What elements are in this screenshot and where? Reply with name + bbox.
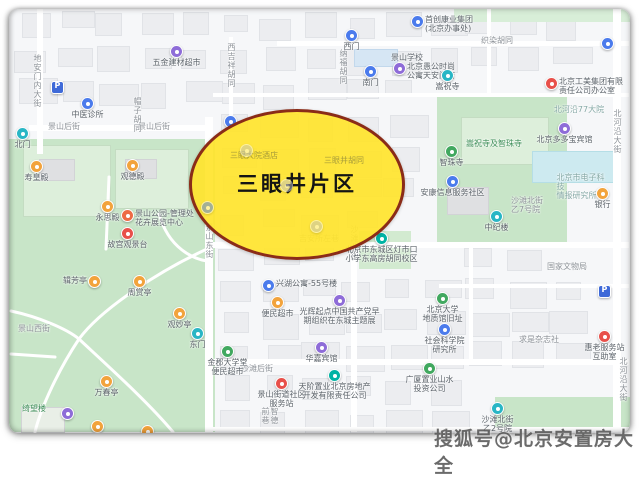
poi-label: 北京工美集团有限 责任公司办公室 bbox=[559, 77, 623, 95]
poi-marker: 南门 bbox=[364, 65, 377, 78]
parking-icon[interactable] bbox=[51, 81, 64, 94]
poi-label: 故宫观景台 bbox=[108, 240, 148, 249]
poi-label: 景山公园-管理处 花卉展览中心 bbox=[135, 209, 194, 227]
poi-marker: 惠老服务站 互助室 bbox=[598, 330, 611, 343]
poi-marker: 中纪楼 bbox=[490, 210, 503, 223]
poi-marker: 北京多多宝宾馆 bbox=[558, 122, 571, 135]
poi-label: 周赏亭 bbox=[128, 288, 152, 297]
poi-marker: 社会科学院 研究所 bbox=[438, 323, 451, 336]
poi-marker bbox=[280, 179, 293, 192]
purple-poi-icon[interactable] bbox=[333, 294, 346, 307]
poi-label: 南门 bbox=[363, 78, 379, 87]
blue-poi-icon[interactable] bbox=[262, 279, 275, 292]
orange-poi-icon[interactable] bbox=[100, 375, 113, 388]
poi-label: 天阶置业北京房地产 开发有限责任公司 bbox=[299, 382, 371, 400]
poi-label: 万春亭 bbox=[95, 388, 119, 397]
highlight-area-label: 三眼井片区 bbox=[237, 168, 357, 198]
poi-label: 社会科学院 研究所 bbox=[425, 336, 465, 354]
orange-poi-icon[interactable] bbox=[88, 275, 101, 288]
poi-layer: 五金建材超市西门南门北京愚公时尚 公寓天安门店首创康业集团 (北京办事处)嵩祝寺… bbox=[9, 9, 630, 433]
poi-marker bbox=[601, 37, 614, 50]
watermark-text: 搜狐号@北京安置房大全 bbox=[434, 424, 640, 478]
green-poi-icon[interactable] bbox=[436, 292, 449, 305]
poi-marker: 景山街道社区 服务站 bbox=[275, 377, 288, 390]
poi-label: 辑芳亭 bbox=[63, 276, 87, 285]
poi-marker: 周赏亭 bbox=[133, 275, 146, 288]
poi-marker: 辑芳亭 bbox=[88, 275, 101, 288]
area-label: 嵩祝寺及智珠寺 bbox=[466, 139, 522, 148]
red-poi-icon[interactable] bbox=[121, 227, 134, 240]
poi-marker: 景山公园-管理处 花卉展览中心 bbox=[121, 209, 134, 222]
poi-label: 北京多多宝宾馆 bbox=[537, 135, 593, 144]
street-label: 织染胡同 bbox=[481, 36, 513, 45]
poi-label: 光辉起点中国共产党早 期组织在东城主题展 bbox=[300, 307, 380, 325]
poi-label: 西门 bbox=[344, 42, 360, 51]
orange-poi-icon[interactable] bbox=[141, 425, 154, 433]
poi-label: 银行 bbox=[595, 200, 611, 209]
poi-label: 嵩祝寺 bbox=[436, 82, 460, 91]
poi-marker: 万春亭 bbox=[100, 375, 113, 388]
teal-poi-icon[interactable] bbox=[328, 369, 341, 382]
area-label: 三眼井胡同 bbox=[324, 156, 364, 165]
gray-poi-icon[interactable] bbox=[280, 179, 293, 192]
poi-marker bbox=[61, 407, 74, 420]
blue-poi-icon[interactable] bbox=[81, 97, 94, 110]
green-poi-icon[interactable] bbox=[221, 345, 234, 358]
poi-marker: 北京大学 地质馆旧址 bbox=[436, 292, 449, 305]
poi-marker: 光辉起点中国共产党早 期组织在东城主题展 bbox=[333, 294, 346, 307]
orange-poi-icon[interactable] bbox=[596, 187, 609, 200]
poi-label: 观妙亭 bbox=[168, 320, 192, 329]
green-poi-icon[interactable] bbox=[423, 362, 436, 375]
poi-label: 安康信息服务社区 bbox=[421, 188, 485, 197]
orange-poi-icon[interactable] bbox=[271, 296, 284, 309]
redorange-poi-icon[interactable] bbox=[121, 209, 134, 222]
purple-poi-icon[interactable] bbox=[170, 45, 183, 58]
poi-marker: 便民超市 bbox=[271, 296, 284, 309]
poi-label: 永思殿 bbox=[96, 213, 120, 222]
poi-marker bbox=[91, 420, 104, 433]
purple-poi-icon[interactable] bbox=[393, 62, 406, 75]
poi-label: 寿皇殿 bbox=[25, 173, 49, 182]
poi-marker: 嵩祝寺 bbox=[441, 69, 454, 82]
street-label: 纳福胡同 bbox=[339, 49, 348, 85]
street-label: 求是杂志社 bbox=[519, 335, 559, 344]
red-poi-icon[interactable] bbox=[275, 377, 288, 390]
poi-label: 首创康业集团 (北京办事处) bbox=[425, 15, 473, 33]
red-poi-icon[interactable] bbox=[545, 77, 558, 90]
orange-poi-icon[interactable] bbox=[173, 307, 186, 320]
poi-label: 惠老服务站 互助室 bbox=[585, 343, 625, 361]
poi-marker: 沙滩北街 乙2号院 bbox=[491, 402, 504, 415]
blue-poi-icon[interactable] bbox=[601, 37, 614, 50]
purple-poi-icon[interactable] bbox=[315, 341, 328, 354]
street-label: 景山后街 bbox=[48, 122, 80, 131]
poi-marker: 北门 bbox=[16, 127, 29, 140]
cyan-poi-icon[interactable] bbox=[191, 327, 204, 340]
poi-label: 北京市东城区灯市口 小学东高房胡同校区 bbox=[346, 245, 418, 263]
street-label: 智德前巷 bbox=[261, 407, 279, 433]
poi-marker bbox=[240, 144, 253, 157]
poi-label: 观德殿 bbox=[121, 172, 145, 181]
poi-marker: 寿皇殿 bbox=[30, 160, 43, 173]
poi-marker: 安康信息服务社区 bbox=[446, 175, 459, 188]
poi-marker bbox=[141, 425, 154, 433]
highlight-ellipse: 三眼井片区 bbox=[189, 109, 405, 260]
poi-label: 兴湖公寓-55号楼 bbox=[276, 279, 337, 288]
poi-label: 五金建材超市 bbox=[153, 58, 201, 67]
poi-marker: 广厦置业山水 投资公司 bbox=[423, 362, 436, 375]
orange-poi-icon[interactable] bbox=[91, 420, 104, 433]
street-label: 景山西街 bbox=[18, 324, 50, 333]
orange-poi-icon[interactable] bbox=[133, 275, 146, 288]
poi-label: 北京大学 地质馆旧址 bbox=[423, 305, 463, 323]
area-label: 景山学校 bbox=[391, 53, 423, 62]
poi-label: 广厦置业山水 投资公司 bbox=[406, 375, 454, 393]
poi-marker: 华嘉宾馆 bbox=[315, 341, 328, 354]
map-photo[interactable]: 地安门内大街景山后街景山后街帽子胡同西吉祥胡同纳福胡同织染胡同北河沿大街北河沿大… bbox=[9, 9, 630, 433]
orange-poi-icon[interactable] bbox=[101, 200, 114, 213]
screenshot-root: { "watermark": { "text": "搜狐号@北京安置房大全" }… bbox=[0, 0, 640, 456]
poi-marker: 天阶置业北京房地产 开发有限责任公司 bbox=[328, 369, 341, 382]
poi-marker: 永思殿 bbox=[101, 200, 114, 213]
area-label: 绮望楼 bbox=[22, 404, 46, 413]
poi-marker: 故宫观景台 bbox=[121, 227, 134, 240]
poi-marker: 观妙亭 bbox=[173, 307, 186, 320]
poi-marker: 中医诊所 bbox=[81, 97, 94, 110]
poi-label: 东门 bbox=[190, 340, 206, 349]
poi-marker bbox=[598, 285, 611, 298]
poi-marker bbox=[51, 81, 64, 94]
gray-poi-icon[interactable] bbox=[310, 220, 323, 233]
poi-marker: 北京愚公时尚 公寓天安门店 bbox=[393, 62, 406, 75]
poi-marker: 东门 bbox=[191, 327, 204, 340]
poi-label: 华嘉宾馆 bbox=[306, 354, 338, 363]
poi-marker: 首创康业集团 (北京办事处) bbox=[411, 15, 424, 28]
orange-poi-icon[interactable] bbox=[30, 160, 43, 173]
poi-label: 中纪楼 bbox=[485, 223, 509, 232]
blue-poi-icon[interactable] bbox=[364, 65, 377, 78]
street-label: 西吉祥胡同 bbox=[227, 43, 236, 88]
blue-poi-icon[interactable] bbox=[446, 175, 459, 188]
poi-marker: 五金建材超市 bbox=[170, 45, 183, 58]
purple-poi-icon[interactable] bbox=[558, 122, 571, 135]
poi-label: 中医诊所 bbox=[72, 110, 104, 119]
poi-marker: 银行 bbox=[596, 187, 609, 200]
green-poi-icon[interactable] bbox=[445, 145, 458, 158]
poi-label: 金郡大学堂 便民超市 bbox=[208, 358, 248, 376]
poi-marker bbox=[201, 201, 214, 214]
street-label: 北河沿大街 bbox=[619, 357, 628, 402]
cyan-poi-icon[interactable] bbox=[441, 69, 454, 82]
purple-poi-icon[interactable] bbox=[61, 407, 74, 420]
poi-marker: 西门 bbox=[345, 29, 358, 42]
poi-label: 便民超市 bbox=[262, 309, 294, 318]
parking-icon[interactable] bbox=[598, 285, 611, 298]
street-label: 景山后街 bbox=[138, 122, 170, 131]
gray-poi-icon[interactable] bbox=[240, 144, 253, 157]
red-poi-icon[interactable] bbox=[598, 330, 611, 343]
orange-poi-icon[interactable] bbox=[126, 159, 139, 172]
area-label: 北河沿77大院 bbox=[554, 105, 604, 114]
street-label: 帽子胡同 bbox=[133, 97, 142, 133]
street-label: 地安门内大街 bbox=[33, 54, 42, 108]
street-label: 沙滩北街 乙7号院 bbox=[511, 196, 543, 214]
street-label: 国家文物局 bbox=[547, 262, 587, 271]
blue-poi-icon[interactable] bbox=[438, 323, 451, 336]
street-label: 北河沿大街 bbox=[613, 109, 622, 154]
poi-marker: 兴湖公寓-55号楼 bbox=[262, 279, 275, 292]
poi-marker: 观德殿 bbox=[126, 159, 139, 172]
blue-poi-icon[interactable] bbox=[345, 29, 358, 42]
blue-poi-icon[interactable] bbox=[411, 15, 424, 28]
poi-marker: 智珠寺 bbox=[445, 145, 458, 158]
poi-label: 智珠寺 bbox=[440, 158, 464, 167]
poi-marker bbox=[310, 220, 323, 233]
cyan-poi-icon[interactable] bbox=[491, 402, 504, 415]
poi-label: 北门 bbox=[15, 140, 31, 149]
poi-marker: 北京工美集团有限 责任公司办公室 bbox=[545, 77, 558, 90]
cyan-poi-icon[interactable] bbox=[16, 127, 29, 140]
cyan-poi-icon[interactable] bbox=[490, 210, 503, 223]
poi-marker: 金郡大学堂 便民超市 bbox=[221, 345, 234, 358]
blue-poi-icon[interactable] bbox=[201, 201, 214, 214]
area-label: 三眼大院酒店 bbox=[230, 151, 278, 160]
